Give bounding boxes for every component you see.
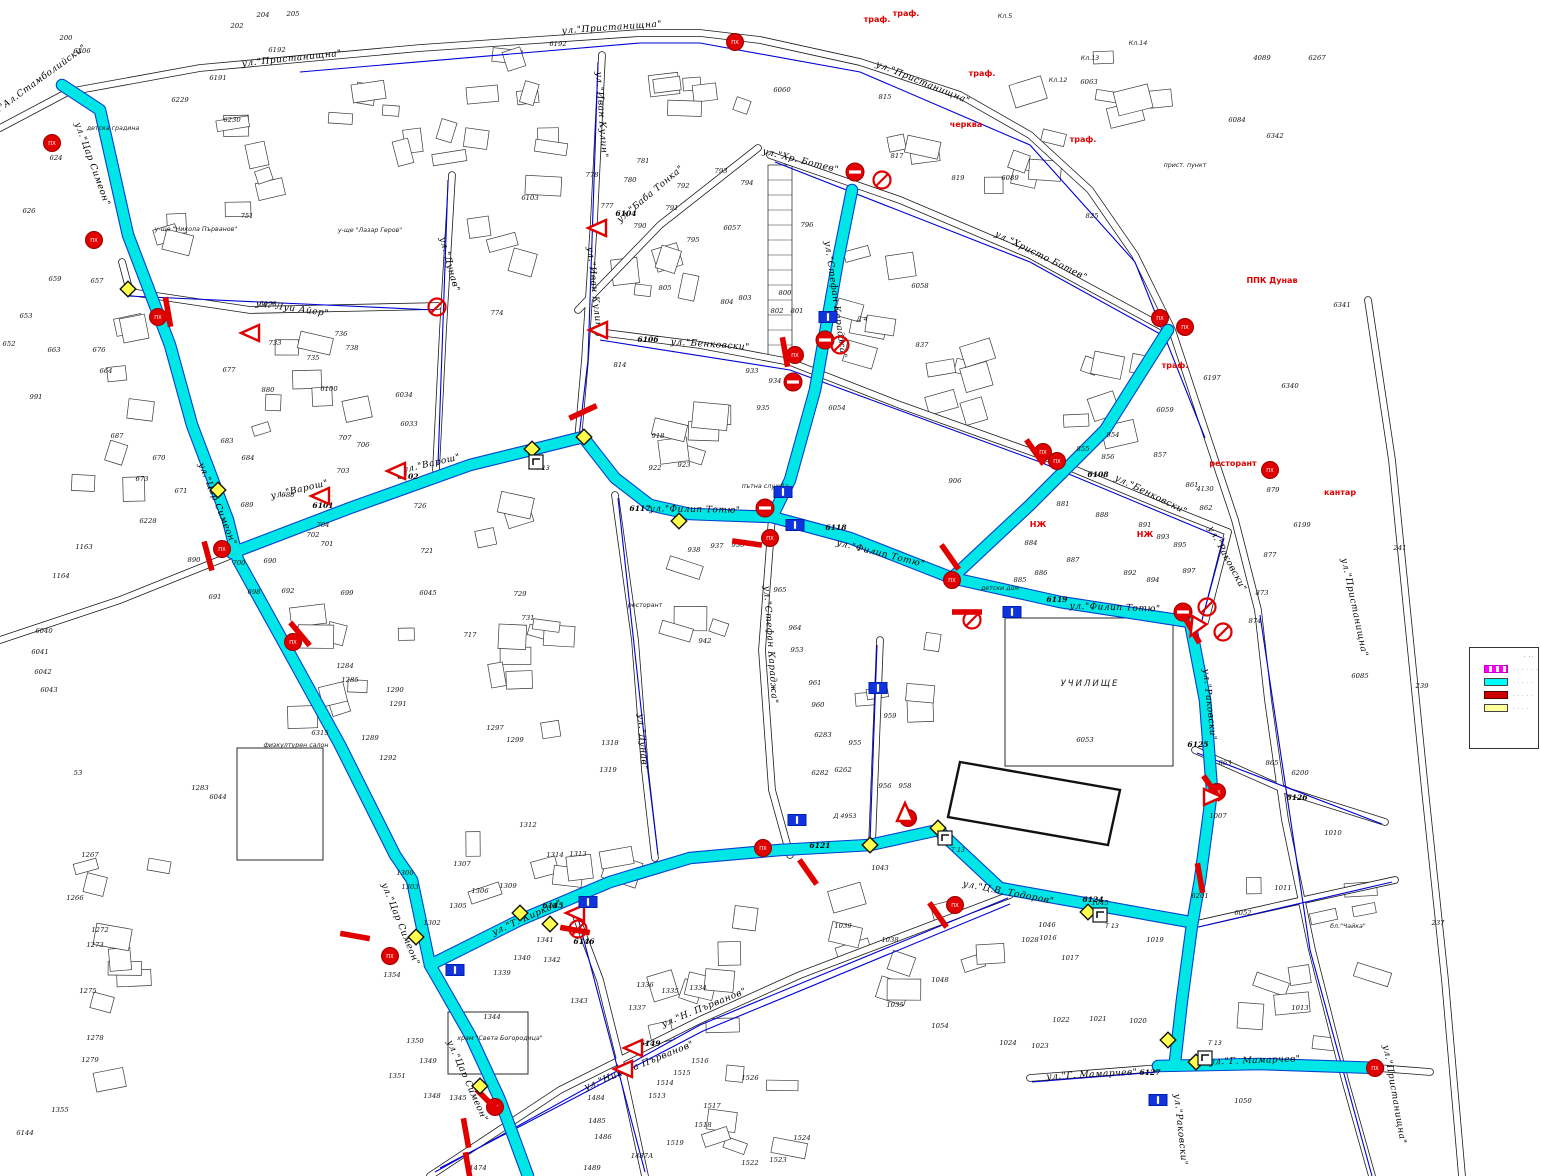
parcel-number: 664 bbox=[100, 367, 113, 375]
fire-hydrant-marker: ПХ bbox=[86, 232, 103, 249]
map-annotation: Т 13 bbox=[951, 847, 965, 854]
legend-label: · · · · · bbox=[1513, 680, 1533, 685]
parcel-number: 1013 bbox=[1291, 1004, 1308, 1012]
parcel-number: 894 bbox=[1147, 576, 1160, 584]
fire-hydrant-label: ПХ bbox=[90, 238, 98, 244]
fire-hydrant-label: ПХ bbox=[154, 315, 162, 321]
fire-hydrant-label: ПХ bbox=[731, 40, 739, 46]
parcel-number: 6053 bbox=[1076, 736, 1093, 744]
building bbox=[704, 969, 735, 993]
large-building bbox=[948, 762, 1120, 845]
parcel-number: 1163 bbox=[75, 543, 92, 551]
building bbox=[1246, 877, 1261, 893]
street-name-label: ул."Филип Тотю" bbox=[648, 504, 740, 516]
parcel-number: 1523 bbox=[769, 1156, 786, 1164]
building bbox=[90, 992, 115, 1013]
building bbox=[265, 394, 281, 411]
gym-building bbox=[237, 748, 323, 860]
parcel-number: 1526 bbox=[741, 1074, 759, 1082]
parcel-number: 791 bbox=[666, 204, 679, 212]
parcel-number: 906 bbox=[949, 477, 963, 485]
parcel-number: 781 bbox=[637, 157, 650, 165]
fitting-square-marker bbox=[1093, 908, 1107, 922]
building bbox=[351, 80, 386, 103]
red-annotation: кантар bbox=[1324, 488, 1356, 497]
parcel-number: 1335 bbox=[661, 987, 678, 995]
valve-stem bbox=[796, 816, 798, 824]
no-entry-solid-icon bbox=[784, 373, 802, 391]
gate-valve-marker bbox=[579, 897, 597, 908]
legend-item-1: · · · · · bbox=[1484, 678, 1534, 686]
parcel-number: 1474 bbox=[469, 1164, 486, 1172]
street-name-label: ул."Г. Мамарчев" bbox=[1045, 1068, 1138, 1083]
triangle-marker bbox=[241, 325, 259, 341]
parcel-number: 814 bbox=[614, 361, 627, 369]
parcel-number: 961 bbox=[809, 679, 822, 687]
parcel-number: 1339 bbox=[493, 969, 511, 977]
parcel-number: 918 bbox=[652, 432, 666, 440]
building bbox=[463, 128, 489, 150]
fire-hydrant-marker: ПХ bbox=[1262, 462, 1279, 479]
building bbox=[328, 112, 353, 124]
parcel-number: 865 bbox=[1266, 759, 1279, 767]
parcel-number: 1297 bbox=[486, 724, 504, 732]
legend-item-0: · · · · · · bbox=[1484, 665, 1534, 673]
parcel-number: 202 bbox=[230, 22, 244, 30]
building bbox=[906, 683, 935, 703]
street-name-label: ул."Ал.Стамболийски" bbox=[0, 42, 88, 122]
parcel-number: 53 bbox=[74, 769, 83, 777]
parcel-number: 774 bbox=[491, 309, 504, 317]
building bbox=[885, 252, 916, 280]
fire-hydrant-label: ПХ bbox=[218, 547, 226, 553]
parcel-number: 1524 bbox=[793, 1134, 810, 1142]
parcel-number: 751 bbox=[241, 212, 254, 220]
map-canvas[interactable]: 2002022042056206619261926191623062296246… bbox=[0, 0, 1541, 1176]
parcel-number: 891 bbox=[1139, 521, 1152, 529]
building bbox=[733, 97, 751, 115]
parcel-number: 1314 bbox=[546, 851, 563, 859]
parcel-number: 721 bbox=[421, 547, 434, 555]
map-legend: · ·· · · · · · ·· · · · ·· · · · ·· · · … bbox=[1469, 647, 1539, 749]
parcel-number: 6267 bbox=[1308, 54, 1326, 62]
parcel-number: 856 bbox=[1102, 453, 1116, 461]
parcel-number: 937 bbox=[711, 542, 725, 550]
parcel-number: 735 bbox=[307, 354, 320, 362]
parcel-number: 1302 bbox=[423, 919, 440, 927]
parcel-number: 862 bbox=[1200, 504, 1213, 512]
parcel-number: 1343 bbox=[570, 997, 587, 1005]
parcel-number: 6191 bbox=[209, 74, 226, 82]
parcel-number: 6341 bbox=[1333, 301, 1350, 309]
parcel-number: 6192 bbox=[268, 46, 285, 54]
parcel-number: 884 bbox=[1025, 539, 1038, 547]
red-annotation: траф. bbox=[1162, 361, 1189, 370]
parcel-number: 942 bbox=[699, 637, 712, 645]
building bbox=[108, 947, 131, 971]
parcel-number: 923 bbox=[678, 461, 691, 469]
street-ref-number: 6127 bbox=[1139, 1068, 1161, 1077]
building bbox=[83, 873, 107, 897]
parcel-number: 1283 bbox=[191, 784, 208, 792]
parcel-number: 684 bbox=[242, 454, 255, 462]
fitting-square-marker bbox=[529, 455, 543, 469]
parcel-number: 819 bbox=[952, 174, 966, 182]
parcel-number: 653 bbox=[20, 312, 33, 320]
slash bbox=[1217, 626, 1229, 638]
map-annotation: детска градина bbox=[86, 125, 140, 132]
building bbox=[292, 370, 321, 389]
fire-hydrant-label: ПХ bbox=[791, 353, 799, 359]
street-ref-number: 6126 bbox=[1286, 793, 1308, 802]
parcel-strip bbox=[768, 165, 792, 360]
map-annotation: Д 4 bbox=[856, 316, 868, 323]
building bbox=[1091, 351, 1125, 379]
parcel-number: 955 bbox=[849, 739, 862, 747]
building bbox=[887, 134, 906, 152]
building bbox=[843, 245, 870, 262]
parcel-number: 691 bbox=[209, 593, 222, 601]
no-entry-bar bbox=[819, 338, 831, 341]
parcel-number: 1516 bbox=[691, 1057, 709, 1065]
parcel-number: 1337 bbox=[628, 1004, 646, 1012]
parcel-number: 795 bbox=[687, 236, 700, 244]
parcel-number: 800 bbox=[779, 289, 793, 297]
building bbox=[245, 141, 269, 169]
fire-hydrant-marker: ПХ bbox=[382, 948, 399, 965]
street-ref-number: 6121 bbox=[809, 841, 830, 850]
fire-hydrant-marker: ПХ bbox=[944, 572, 961, 589]
valve-bar-marker bbox=[939, 543, 961, 571]
building bbox=[1063, 414, 1089, 427]
parcel-number: 890 bbox=[188, 556, 202, 564]
building bbox=[382, 105, 399, 117]
parcel-number: 239 bbox=[1415, 682, 1430, 690]
building bbox=[147, 858, 171, 874]
fire-hydrant-label: ПХ bbox=[759, 846, 767, 852]
street-name-label: ул."Бенковски" bbox=[1112, 473, 1188, 517]
building bbox=[732, 905, 758, 930]
parcel-number: 991 bbox=[30, 393, 43, 401]
parcel-number: 877 bbox=[1264, 551, 1278, 559]
parcel-number: 1290 bbox=[386, 686, 404, 694]
building bbox=[127, 399, 155, 422]
building bbox=[984, 177, 1003, 193]
fire-hydrant-marker: ПХ bbox=[727, 34, 744, 51]
parcel-number: 6315 bbox=[311, 729, 328, 737]
street-name-label: ул."Филип Тотю" bbox=[834, 538, 926, 570]
parcel-number: 1285 bbox=[341, 676, 358, 684]
parcel-number: 6041 bbox=[31, 648, 48, 656]
parcel-number: 1007 bbox=[1209, 812, 1227, 820]
building bbox=[498, 624, 527, 650]
building bbox=[432, 149, 467, 165]
parcel-number: 817 bbox=[891, 152, 905, 160]
parcel-number: 6282 bbox=[811, 769, 828, 777]
parcel-number: 673 bbox=[136, 475, 149, 483]
building bbox=[534, 139, 568, 156]
fitting-box bbox=[1093, 908, 1107, 922]
parcel-number: 1518 bbox=[694, 1121, 712, 1129]
parcel-number: 1485 bbox=[588, 1117, 605, 1125]
parcel-number: 854 bbox=[1107, 431, 1120, 439]
parcel-number: 1309 bbox=[499, 882, 517, 890]
parcel-number: 964 bbox=[789, 624, 802, 632]
building bbox=[1008, 150, 1031, 173]
building bbox=[924, 632, 941, 651]
no-entry-outline-icon bbox=[1215, 624, 1232, 641]
parcel-number: 801 bbox=[791, 307, 804, 315]
building bbox=[718, 941, 741, 965]
map-annotation: УЧИЛИЩЕ bbox=[1061, 679, 1120, 689]
parcel-number: 6340 bbox=[1281, 382, 1299, 390]
fire-hydrant-label: ПХ bbox=[48, 141, 56, 147]
gate-valve-marker bbox=[446, 965, 464, 976]
parcel-number: 699 bbox=[341, 589, 355, 597]
valve-bar-marker bbox=[952, 609, 982, 615]
map-annotation: у-ще "Никола Първанов" bbox=[154, 226, 238, 233]
road-surface bbox=[1368, 300, 1462, 1176]
building bbox=[119, 314, 149, 343]
parcel-number: 960 bbox=[812, 701, 826, 709]
no-entry-solid-icon bbox=[756, 499, 774, 517]
map-annotation: у-ще "Лазар Геров" bbox=[337, 227, 402, 234]
parcel-number: 6100 bbox=[320, 385, 338, 393]
fire-hydrant-marker: ПХ bbox=[150, 309, 167, 326]
fire-hydrant-marker: ПХ bbox=[947, 897, 964, 914]
fire-hydrant-label: ПХ bbox=[1181, 325, 1189, 331]
parcel-number: 1305 bbox=[449, 902, 466, 910]
legend-item-3: · · · · bbox=[1484, 704, 1534, 712]
parcel-number: 880 bbox=[262, 386, 276, 394]
parcel-number: 1050 bbox=[1234, 1097, 1252, 1105]
gate-valve-marker bbox=[786, 520, 804, 531]
no-entry-bar bbox=[787, 380, 799, 383]
parcel-number: 1522 bbox=[741, 1159, 758, 1167]
valve-stem bbox=[827, 313, 829, 321]
parcel-number: 652 bbox=[3, 340, 16, 348]
parcel-number: 6044 bbox=[209, 793, 226, 801]
parcel-number: 802 bbox=[771, 307, 784, 315]
parcel-number: 1517 bbox=[703, 1102, 721, 1110]
parcel-number: 1039 bbox=[834, 922, 852, 930]
parcel-number: 657 bbox=[91, 277, 105, 285]
building bbox=[1253, 972, 1290, 996]
road-surface bbox=[1192, 880, 1395, 925]
parcel-number: 933 bbox=[746, 367, 759, 375]
valve-stem bbox=[877, 684, 879, 692]
valve-bar-marker bbox=[797, 858, 819, 886]
parcel-number: 1017 bbox=[1061, 954, 1079, 962]
diamond-marker bbox=[542, 916, 558, 932]
parcel-number: 777 bbox=[601, 202, 615, 210]
map-annotation: ресторант bbox=[627, 602, 663, 609]
no-entry-bar bbox=[1177, 610, 1189, 613]
water-pipe-line bbox=[300, 43, 1205, 438]
fire-hydrant-marker: ПХ bbox=[762, 530, 779, 547]
map-annotation: Т 13 bbox=[1105, 923, 1119, 930]
parcel-number: 887 bbox=[1067, 556, 1081, 564]
parcel-number: 1010 bbox=[1324, 829, 1342, 837]
map-annotation: детски дом bbox=[980, 585, 1019, 592]
street-name-label: ул."Филип Тотю" bbox=[1068, 601, 1160, 614]
parcel-number: 6283 bbox=[814, 731, 831, 739]
building bbox=[162, 229, 194, 256]
parcel-number: 241 bbox=[1393, 544, 1407, 552]
parcel-number: 1312 bbox=[519, 821, 536, 829]
parcel-number: 726 bbox=[414, 502, 428, 510]
fitting-box bbox=[529, 455, 543, 469]
parcel-number: 1348 bbox=[423, 1092, 441, 1100]
no-entry-outline-icon bbox=[874, 172, 891, 189]
parcel-number: 6058 bbox=[911, 282, 929, 290]
parcel-number: 6084 bbox=[1228, 116, 1245, 124]
gate-valve-marker bbox=[869, 683, 887, 694]
street-name-label: ул."Луи Айер" bbox=[254, 299, 329, 319]
parcel-number: 1519 bbox=[666, 1139, 684, 1147]
parcel-number: 959 bbox=[884, 712, 898, 720]
valve-stem bbox=[1011, 608, 1013, 616]
building bbox=[342, 396, 372, 423]
street-name-label: ул."Пристанищна" bbox=[240, 49, 342, 70]
street-name-label: ул."Христо Ботев" bbox=[992, 229, 1089, 283]
parcel-number: 698 bbox=[248, 588, 262, 596]
slash bbox=[876, 174, 888, 186]
parcel-number: 659 bbox=[49, 275, 63, 283]
parcel-number: 1513 bbox=[648, 1092, 665, 1100]
parcel-number: 1351 bbox=[388, 1072, 405, 1080]
street-ref-number: 6124 bbox=[1082, 895, 1103, 904]
parcel-number: 1054 bbox=[931, 1022, 948, 1030]
parcel-number: 6230 bbox=[223, 116, 241, 124]
street-ref-number: 6106 bbox=[637, 335, 659, 344]
parcel-number: 837 bbox=[916, 341, 930, 349]
fitting-box bbox=[938, 831, 952, 845]
fire-hydrant-label: ПХ bbox=[1156, 316, 1164, 322]
parcel-number: 1355 bbox=[51, 1106, 68, 1114]
parcel-number: 6045 bbox=[419, 589, 436, 597]
parcel-number: 790 bbox=[634, 222, 648, 230]
parcel-number: 879 bbox=[1267, 486, 1281, 494]
legend-swatch-yellow bbox=[1484, 704, 1508, 712]
red-annotation: траф. bbox=[864, 15, 891, 24]
parcel-number: 953 bbox=[791, 646, 804, 654]
parcel-number: 6042 bbox=[34, 668, 51, 676]
building bbox=[525, 175, 562, 196]
valve-stem bbox=[782, 488, 784, 496]
parcel-number: 6342 bbox=[1266, 132, 1283, 140]
fire-hydrant-label: ПХ bbox=[948, 578, 956, 584]
parcel-number: 1267 bbox=[81, 851, 99, 859]
parcel-number: 1021 bbox=[1089, 1015, 1106, 1023]
street-name-label: ул."Пристанищна" bbox=[1380, 1043, 1407, 1145]
map-annotation: Кл.13 bbox=[1081, 55, 1100, 62]
parcel-number: 897 bbox=[1183, 567, 1197, 575]
parcel-number: 938 bbox=[688, 546, 702, 554]
parcel-number: 956 bbox=[879, 782, 893, 790]
map-annotation: Кл.12 bbox=[1049, 77, 1068, 84]
parcel-number: 1291 bbox=[389, 700, 406, 708]
parcel-number: 1011 bbox=[1274, 884, 1291, 892]
parcel-number: 1334 bbox=[689, 984, 706, 992]
legend-title: · ·· bbox=[1484, 654, 1534, 660]
building bbox=[541, 720, 561, 738]
building bbox=[1352, 903, 1376, 917]
parcel-number: 815 bbox=[879, 93, 892, 101]
slash bbox=[966, 614, 978, 626]
parcel-number: 700 bbox=[233, 559, 247, 567]
building bbox=[904, 135, 941, 159]
parcel-number: 6197 bbox=[1203, 374, 1221, 382]
parcel-number: 6033 bbox=[400, 420, 417, 428]
building bbox=[500, 647, 531, 664]
parcel-number: 676 bbox=[93, 346, 107, 354]
gate-valve-marker bbox=[1149, 1095, 1167, 1106]
map-annotation: Д 4953 bbox=[833, 813, 857, 820]
building bbox=[1009, 76, 1047, 108]
parcel-number: 1292 bbox=[379, 754, 396, 762]
fire-hydrant-marker: ПХ bbox=[214, 541, 231, 558]
valve-stem bbox=[1157, 1096, 1159, 1104]
parcel-number: 885 bbox=[1014, 576, 1027, 584]
building bbox=[467, 216, 491, 238]
red-annotation: черква bbox=[950, 120, 983, 129]
parcel-number: 881 bbox=[1057, 500, 1070, 508]
parcel-number: 6192 bbox=[549, 40, 566, 48]
parcel-number: 1336 bbox=[636, 981, 654, 989]
parcel-number: 888 bbox=[1096, 511, 1110, 519]
parcel-number: 6057 bbox=[723, 224, 741, 232]
parcel-number: 922 bbox=[649, 464, 662, 472]
building bbox=[1113, 84, 1153, 116]
building bbox=[976, 943, 1005, 964]
parcel-number: 624 bbox=[50, 154, 63, 162]
road-surface bbox=[615, 495, 655, 858]
legend-label: · · · · bbox=[1513, 706, 1529, 711]
parcel-number: 736 bbox=[335, 330, 349, 338]
building bbox=[497, 491, 534, 519]
parcel-number: 1319 bbox=[599, 766, 617, 774]
parcel-number: 1038 bbox=[881, 936, 899, 944]
map-annotation: бл."Чайка" bbox=[1330, 922, 1366, 930]
building bbox=[297, 331, 333, 355]
parcel-number: 1345 bbox=[449, 1094, 466, 1102]
building bbox=[488, 662, 507, 688]
map-annotation: храм "Света Богородица" bbox=[456, 1035, 543, 1042]
fire-hydrant-marker: ПХ bbox=[1049, 453, 1066, 470]
parcel-number: 1514 bbox=[656, 1079, 673, 1087]
parcel-number: 6199 bbox=[1293, 521, 1311, 529]
parcel-number: 6043 bbox=[40, 686, 57, 694]
parcel-number: 935 bbox=[757, 404, 770, 412]
building bbox=[766, 1080, 798, 1091]
parcel-number: 893 bbox=[1157, 533, 1170, 541]
building bbox=[105, 440, 128, 465]
fire-hydrant-marker: ПХ bbox=[1367, 1060, 1384, 1077]
parcel-number: 731 bbox=[522, 614, 535, 622]
parcel-number: 1275 bbox=[79, 987, 96, 995]
building bbox=[436, 119, 457, 143]
parcel-number: 701 bbox=[321, 540, 334, 548]
fire-hydrant-label: ПХ bbox=[1266, 468, 1274, 474]
parcel-number: 1515 bbox=[673, 1069, 690, 1077]
no-entry-solid-icon bbox=[846, 163, 864, 181]
gate-valve-marker bbox=[774, 487, 792, 498]
parcel-number: 1278 bbox=[86, 1034, 104, 1042]
fire-hydrant-label: ПХ bbox=[1053, 459, 1061, 465]
parcel-number: 6060 bbox=[773, 86, 791, 94]
parcel-number: 958 bbox=[899, 782, 913, 790]
